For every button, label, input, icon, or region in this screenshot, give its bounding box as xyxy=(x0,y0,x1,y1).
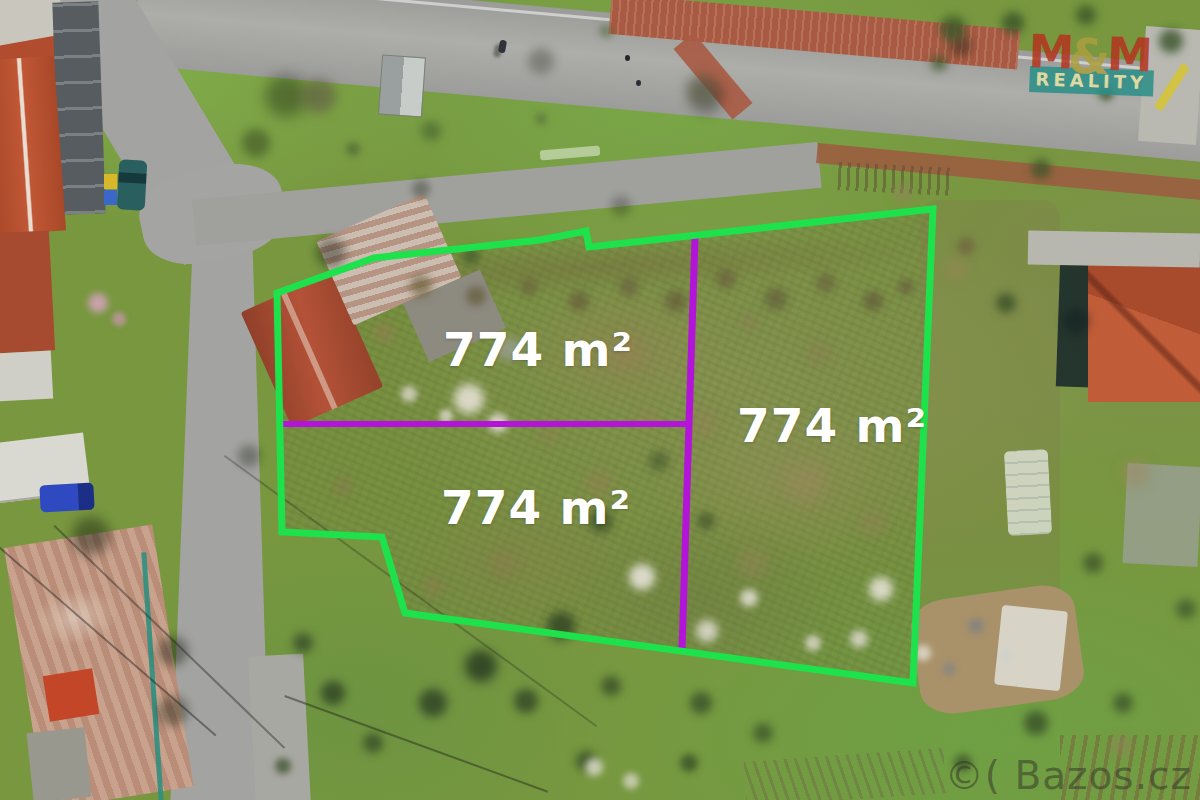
area-label-upper-left: 774 m² xyxy=(443,326,633,373)
plot-overlay xyxy=(0,0,1200,800)
photo-watermark: ©( Bazos.cz xyxy=(945,753,1192,798)
agency-logo: M & M REALITY xyxy=(1027,30,1199,106)
logo-letter-m-right: M xyxy=(1106,35,1150,76)
aerial-photo: 774 m² 774 m² 774 m² M & M REALITY ©( Ba… xyxy=(0,0,1200,800)
area-label-lower-left: 774 m² xyxy=(441,484,631,531)
plot-divider-vertical xyxy=(682,238,695,651)
logo-letter-m-left: M xyxy=(1028,32,1072,73)
area-label-right: 774 m² xyxy=(737,402,927,449)
logo-ampersand: & xyxy=(1067,35,1110,77)
